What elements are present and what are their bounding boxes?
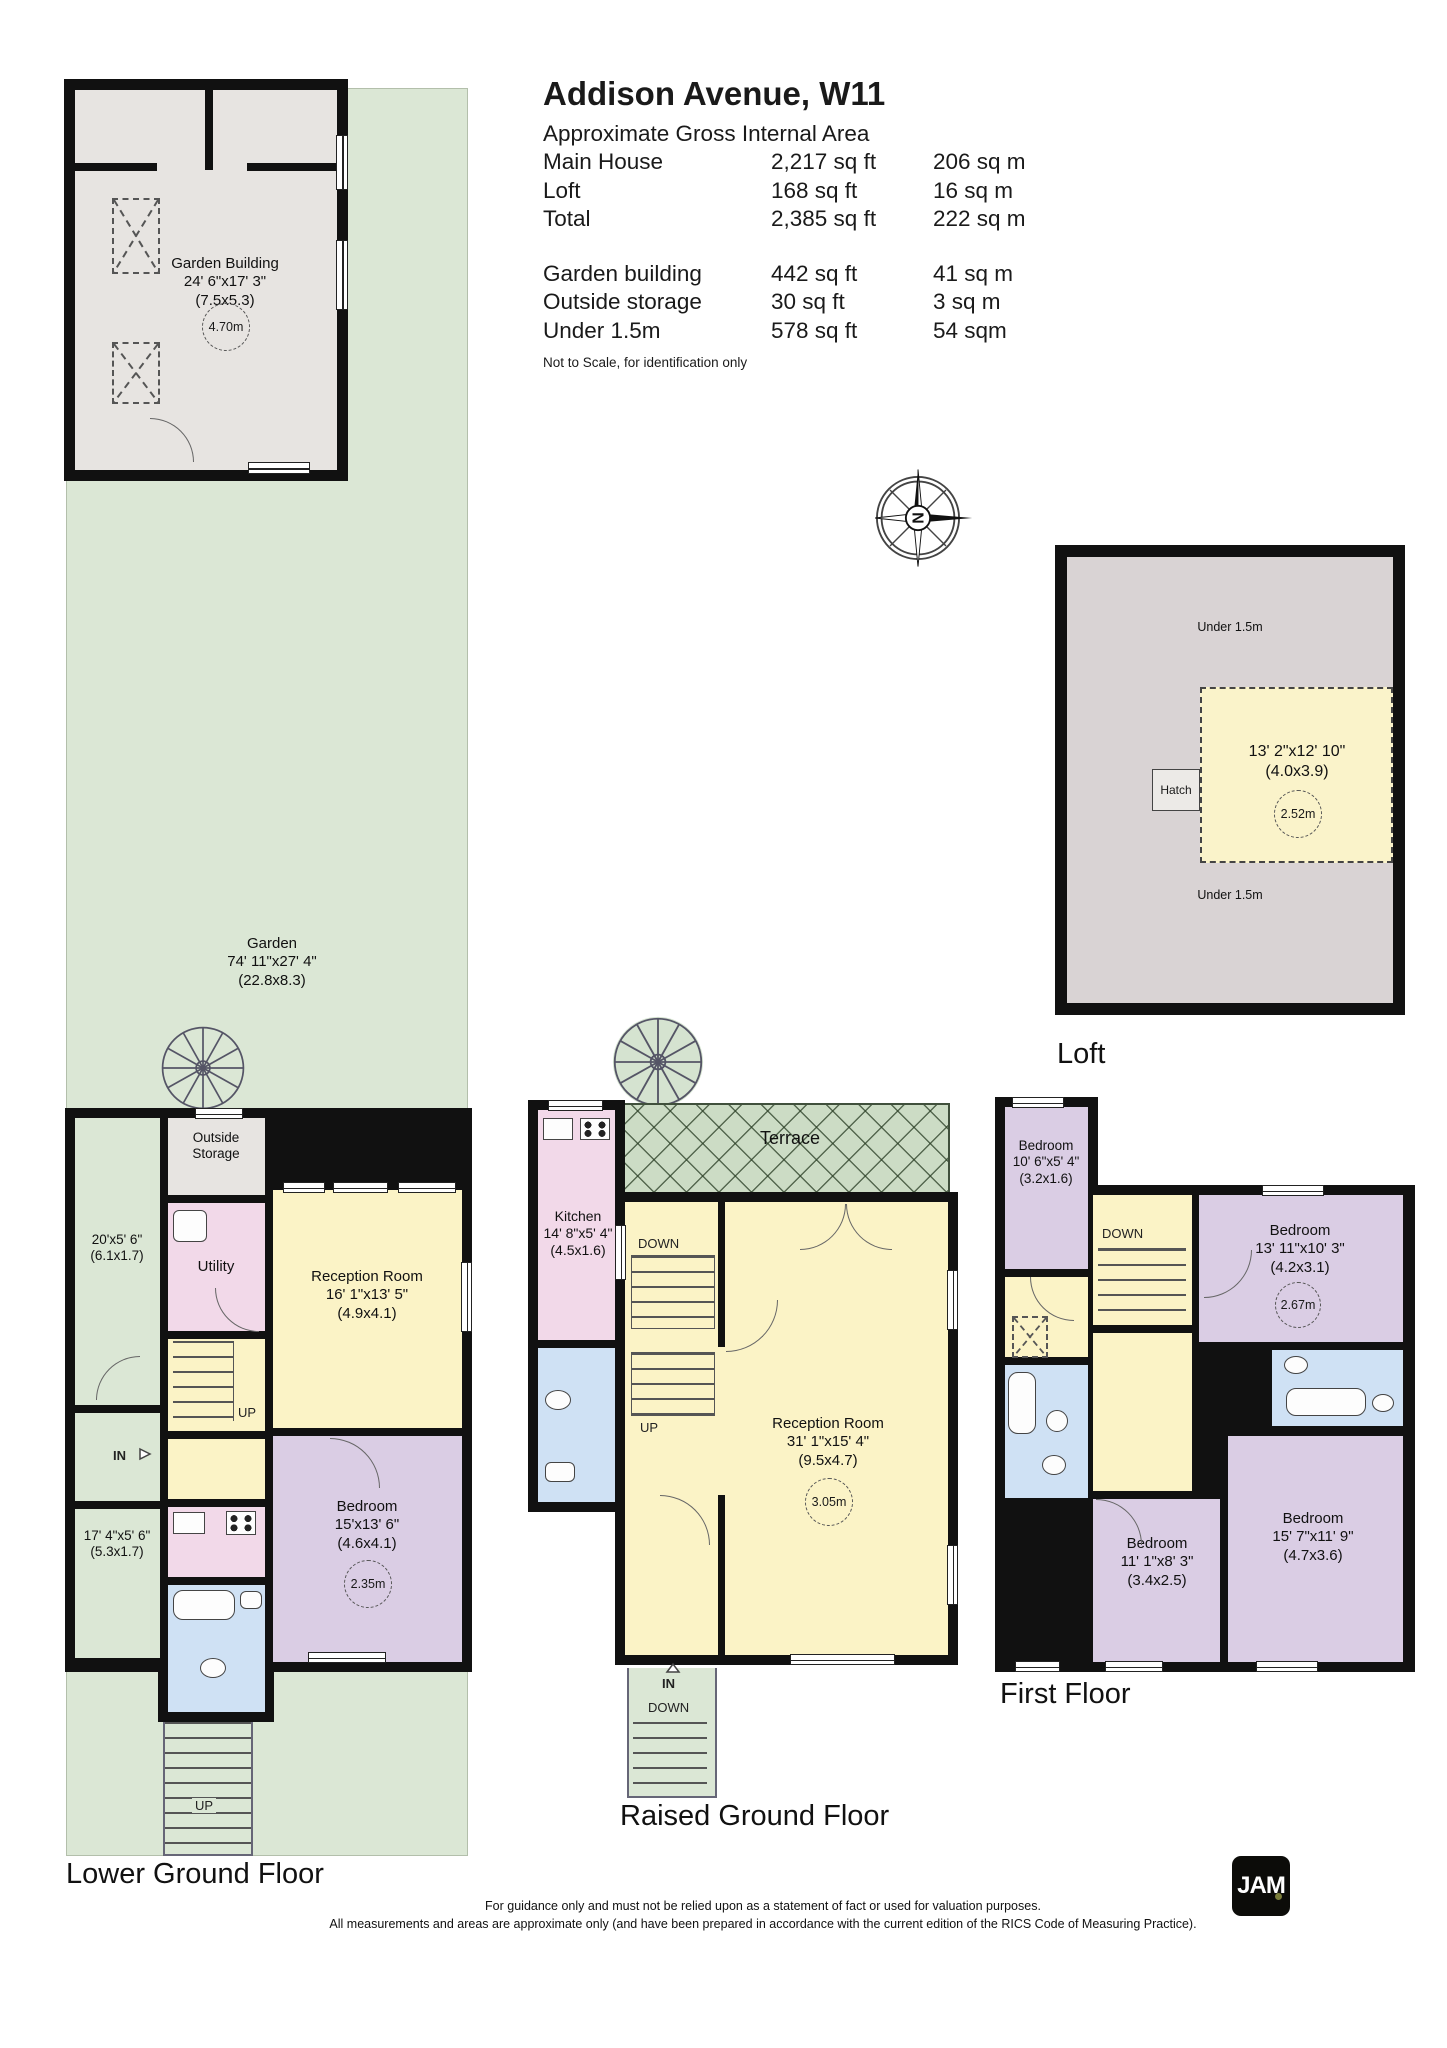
passage-metric: (5.3x1.7): [84, 1544, 151, 1560]
first-floor-label: First Floor: [1000, 1678, 1131, 1711]
area-row-label: Loft: [543, 177, 771, 206]
skylight-icon: [112, 198, 160, 274]
basin-icon: [1372, 1394, 1394, 1412]
garden-building-partition-v: [205, 90, 213, 170]
garden-metric: (22.8x8.3): [227, 972, 317, 990]
kitchen-sink-icon: [173, 1512, 205, 1534]
lgf-passage-upper-label: 20'x5' 6" (6.1x1.7): [90, 1232, 143, 1265]
area-row: Total 2,385 sq ft 222 sq m: [543, 205, 1063, 234]
ff-bedroom-large-label: Bedroom 15' 7"x11' 9" (4.7x3.6): [1272, 1510, 1353, 1565]
area-row-sqft: 168 sq ft: [771, 177, 933, 206]
ff-bedroom-small-label: Bedroom 10' 6"x5' 4" (3.2x1.6): [1013, 1138, 1080, 1187]
loft-room-label: 13' 2"x12' 10" (4.0x3.9): [1249, 742, 1346, 781]
basin-icon: [240, 1591, 262, 1609]
ff-window: [1015, 1661, 1060, 1672]
room-dims: 15'x13' 6": [335, 1516, 399, 1534]
area-row-sqft: 442 sq ft: [771, 260, 933, 289]
room-name: Bedroom: [1272, 1510, 1353, 1528]
area-row: Loft 168 sq ft 16 sq m: [543, 177, 1063, 206]
disclaimer-line1: For guidance only and must not be relied…: [173, 1898, 1353, 1916]
rgf-down-label: DOWN: [638, 1236, 679, 1251]
garden-name: Garden: [227, 935, 317, 953]
loft-ceiling-height: 2.52m: [1274, 790, 1322, 838]
hob-icon: [580, 1118, 610, 1140]
lgf-window: [333, 1182, 388, 1193]
room-metric: (3.2x1.6): [1013, 1171, 1080, 1187]
scale-note: Not to Scale, for identification only: [543, 355, 1063, 370]
room-metric: (4.6x4.1): [335, 1535, 399, 1553]
ff-window: [1256, 1661, 1318, 1672]
garden-building-window-3: [248, 462, 310, 474]
lgf-passage-lower-label: 17' 4"x5' 6" (5.3x1.7): [84, 1528, 151, 1561]
ff-bedroom-small: [1005, 1107, 1088, 1269]
rgf-partition-upper: [718, 1202, 725, 1347]
basin-icon: [545, 1462, 575, 1482]
bathtub-icon: [173, 1590, 235, 1620]
room-metric: (4.7x3.6): [1272, 1547, 1353, 1565]
lgf-utility-label: Utility: [198, 1258, 235, 1276]
area-row: Outside storage 30 sq ft 3 sq m: [543, 288, 1063, 317]
room-name: Bedroom: [335, 1498, 399, 1516]
spiral-staircase-icon: [612, 1016, 704, 1108]
lgf-window: [308, 1652, 386, 1663]
raised-ground-floor-label: Raised Ground Floor: [620, 1800, 889, 1833]
jam-logo: JAM: [1232, 1856, 1290, 1916]
skylight-icon: [112, 342, 160, 404]
room-metric: (9.5x4.7): [772, 1452, 884, 1470]
room-dims: 15' 7"x11' 9": [1272, 1528, 1353, 1546]
area-row: Main House 2,217 sq ft 206 sq m: [543, 148, 1063, 177]
room-name: Reception Room: [311, 1268, 423, 1286]
rgf-reception-label: Reception Room 31' 1"x15' 4" (9.5x4.7): [772, 1415, 884, 1470]
rgf-window: [790, 1654, 895, 1665]
area-row-label: Garden building: [543, 260, 771, 289]
passage-dims: 20'x5' 6": [90, 1232, 143, 1248]
loft-under-eaves-bottom: Under 1.5m: [1197, 888, 1262, 903]
lgf-reception-label: Reception Room 16' 1"x13' 5" (4.9x4.1): [311, 1268, 423, 1323]
rgf-window: [615, 1225, 626, 1280]
rgf-stairs-up: [631, 1352, 715, 1416]
room-dims: 16' 1"x13' 5": [311, 1286, 423, 1304]
loft-floor-label: Loft: [1057, 1038, 1105, 1071]
rgf-window: [947, 1545, 958, 1605]
ff-bedroom-right-label: Bedroom 13' 11"x10' 3" (4.2x3.1): [1255, 1222, 1345, 1277]
garden-building-window-2: [336, 240, 348, 310]
garden-building-name: Garden Building: [171, 255, 279, 273]
loft-hatch: Hatch: [1152, 769, 1200, 811]
room-name: Reception Room: [772, 1415, 884, 1433]
area-row-sqft: 30 sq ft: [771, 288, 933, 317]
lgf-window: [283, 1182, 325, 1193]
toilet-icon: [1284, 1356, 1308, 1374]
spacer: [543, 234, 1063, 260]
area-row-sqft: 2,385 sq ft: [771, 205, 933, 234]
area-subtitle: Approximate Gross Internal Area: [543, 120, 1063, 148]
rgf-terrace-label: Terrace: [760, 1128, 820, 1150]
compass-north-letter: N: [908, 512, 925, 523]
room-metric: (4.2x3.1): [1255, 1259, 1345, 1277]
garden-building-dims: 24' 6"x17' 3": [171, 273, 279, 291]
disclaimer-line2: All measurements and areas are approxima…: [173, 1916, 1353, 1934]
area-row-label: Outside storage: [543, 288, 771, 317]
lgf-bedroom-ceiling-height: 2.35m: [344, 1560, 392, 1608]
rgf-porch-treads: [633, 1722, 707, 1790]
room-dims: 13' 11"x10' 3": [1255, 1240, 1345, 1258]
room-name: Bedroom: [1255, 1222, 1345, 1240]
spiral-staircase-icon: [160, 1025, 246, 1111]
rgf-kitchen-label: Kitchen 14' 8"x5' 4" (4.5x1.6): [544, 1208, 613, 1259]
rgf-ceiling-height: 3.05m: [805, 1478, 853, 1526]
rgf-in-label: IN: [662, 1676, 675, 1691]
area-row-sqm: 206 sq m: [933, 148, 1063, 177]
room-name: Kitchen: [544, 1208, 613, 1225]
area-row-sqm: 222 sq m: [933, 205, 1063, 234]
loft-hatch-label: Hatch: [1160, 783, 1191, 797]
area-row-sqm: 54 sqm: [933, 317, 1063, 346]
compass-north-icon: N: [862, 462, 974, 574]
hob-icon: [226, 1511, 256, 1535]
floorplan-sheet: Garden 74' 11"x27' 4" (22.8x8.3) Garden …: [0, 0, 1447, 2048]
jam-logo-dot-icon: [1275, 1893, 1282, 1900]
area-row-sqft: 578 sq ft: [771, 317, 933, 346]
lower-ground-floor-label: Lower Ground Floor: [66, 1858, 324, 1891]
rgf-up-label: UP: [640, 1420, 658, 1435]
ff-window: [1262, 1185, 1324, 1196]
room-metric: (4.9x4.1): [311, 1305, 423, 1323]
page-title: Addison Avenue, W11: [543, 76, 1063, 112]
garden-label: Garden 74' 11"x27' 4" (22.8x8.3): [227, 935, 317, 990]
loft-room-dims: 13' 2"x12' 10": [1249, 742, 1346, 762]
garden-building-partition-h2: [247, 163, 337, 171]
toilet-icon: [1042, 1455, 1066, 1475]
entry-arrow-icon: [665, 1662, 681, 1674]
bathtub-icon: [1286, 1388, 1366, 1416]
passage-metric: (6.1x1.7): [90, 1248, 143, 1264]
room-name: Bedroom: [1013, 1138, 1080, 1154]
area-row: Under 1.5m 578 sq ft 54 sqm: [543, 317, 1063, 346]
garden-building-label: Garden Building 24' 6"x17' 3" (7.5x5.3): [171, 255, 279, 310]
ff-window: [1012, 1097, 1064, 1108]
washing-machine-icon: [173, 1210, 207, 1242]
title-block: Addison Avenue, W11 Approximate Gross In…: [543, 76, 1063, 370]
kitchen-sink-icon: [543, 1118, 573, 1140]
lgf-window: [195, 1108, 243, 1119]
toilet-icon: [545, 1390, 571, 1410]
area-row-label: Main House: [543, 148, 771, 177]
lgf-ext-up-label: UP: [192, 1798, 216, 1813]
lgf-window: [398, 1182, 456, 1193]
lgf-bedroom-label: Bedroom 15'x13' 6" (4.6x4.1): [335, 1498, 399, 1553]
garden-building-ceiling-height: 4.70m: [202, 303, 250, 351]
area-row-label: Under 1.5m: [543, 317, 771, 346]
garden-building-window-1: [336, 135, 348, 190]
disclaimer: For guidance only and must not be relied…: [173, 1898, 1353, 1933]
passage-dims: 17' 4"x5' 6": [84, 1528, 151, 1544]
lgf-window: [461, 1262, 472, 1332]
room-dims: 14' 8"x5' 4": [544, 1225, 613, 1242]
lgf-outside-storage-label: Outside Storage: [181, 1130, 251, 1163]
rgf-stairs-down: [631, 1255, 715, 1329]
loft-room-metric: (4.0x3.9): [1249, 762, 1346, 782]
room-dims: 10' 6"x5' 4": [1013, 1154, 1080, 1170]
area-row-sqm: 16 sq m: [933, 177, 1063, 206]
bathtub-icon: [1008, 1372, 1036, 1434]
garden-dims: 74' 11"x27' 4": [227, 953, 317, 971]
room-dims: 31' 1"x15' 4": [772, 1433, 884, 1451]
rgf-window: [548, 1100, 603, 1111]
entry-arrow-icon: [138, 1447, 152, 1461]
rgf-partition-lower: [718, 1495, 725, 1655]
area-row-sqm: 3 sq m: [933, 288, 1063, 317]
rgf-window: [947, 1270, 958, 1330]
ff-ceiling-height: 2.67m: [1275, 1282, 1321, 1328]
room-metric: (3.4x2.5): [1121, 1572, 1194, 1590]
room-dims: 11' 1"x8' 3": [1121, 1553, 1194, 1571]
rgf-ext-down-label: DOWN: [648, 1700, 689, 1715]
area-row: Garden building 442 sq ft 41 sq m: [543, 260, 1063, 289]
ff-down-label: DOWN: [1102, 1226, 1143, 1241]
loft-under-eaves-top: Under 1.5m: [1197, 620, 1262, 635]
wardrobe-icon: [1012, 1316, 1048, 1358]
lgf-stairs-treads: [173, 1341, 234, 1421]
garden-building-partition-h1: [75, 163, 157, 171]
area-row-sqm: 41 sq m: [933, 260, 1063, 289]
room-metric: (4.5x1.6): [544, 1242, 613, 1259]
toilet-icon: [200, 1658, 226, 1678]
area-row-sqft: 2,217 sq ft: [771, 148, 933, 177]
basin-icon: [1046, 1410, 1068, 1432]
lgf-in-label: IN: [113, 1448, 126, 1463]
lgf-external-stairs: [163, 1722, 253, 1856]
lgf-hall: [168, 1439, 265, 1499]
area-row-label: Total: [543, 205, 771, 234]
ff-stairs-treads: [1098, 1248, 1186, 1319]
ff-window: [1105, 1661, 1163, 1672]
lgf-up-label: UP: [238, 1405, 256, 1420]
ff-corridor: [1093, 1333, 1192, 1491]
